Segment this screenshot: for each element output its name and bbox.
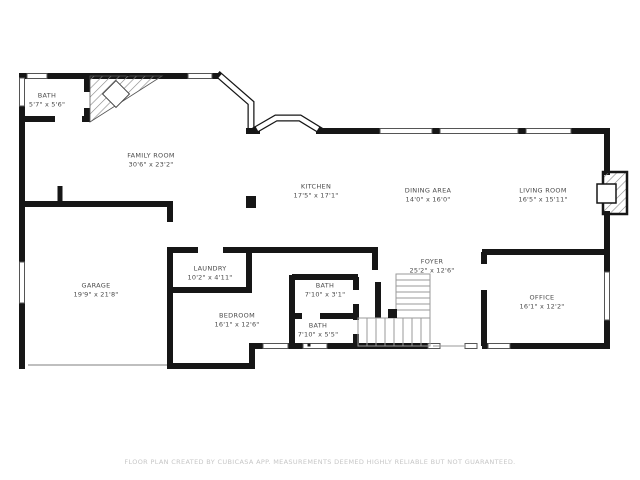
kitchen-wall-column [246, 196, 256, 208]
room-label-dining-area: DINING AREA 14'0" x 16'0" [405, 187, 451, 206]
floor-plan-drawing [0, 0, 640, 480]
dimension-ticks [93, 73, 549, 347]
corner-fireplace [90, 76, 162, 122]
room-label-bath-middle: BATH 7'10" x 3'1" [305, 282, 346, 301]
room-label-laundry: LAUNDRY 10'2" x 4'11" [188, 265, 233, 284]
room-label-garage: GARAGE 19'9" x 21'8" [74, 282, 119, 301]
bay-windows [220, 76, 318, 129]
room-label-living-room: LIVING ROOM 16'5" x 15'11" [518, 187, 567, 206]
footer-disclaimer: FLOOR PLAN CREATED BY CUBICASA APP. MEAS… [124, 458, 515, 466]
staircase [358, 274, 430, 346]
room-label-office: OFFICE 16'1" x 12'2" [520, 294, 565, 313]
room-label-bath-upper: BATH 5'7" x 5'6" [29, 92, 65, 111]
room-label-family-room: FAMILY ROOM 30'6" x 23'2" [127, 152, 175, 171]
fireplace [597, 172, 627, 214]
room-label-kitchen: KITCHEN 17'5" x 17'1" [294, 183, 339, 202]
room-label-foyer: FOYER 25'2" x 12'6" [410, 258, 455, 277]
floor-plan-page: BATH 5'7" x 5'6" FAMILY ROOM 30'6" x 23'… [0, 0, 640, 480]
room-label-bath-lower: BATH 7'10" x 5'5" [298, 322, 339, 341]
room-label-bedroom: BEDROOM 16'1" x 12'6" [215, 312, 260, 331]
